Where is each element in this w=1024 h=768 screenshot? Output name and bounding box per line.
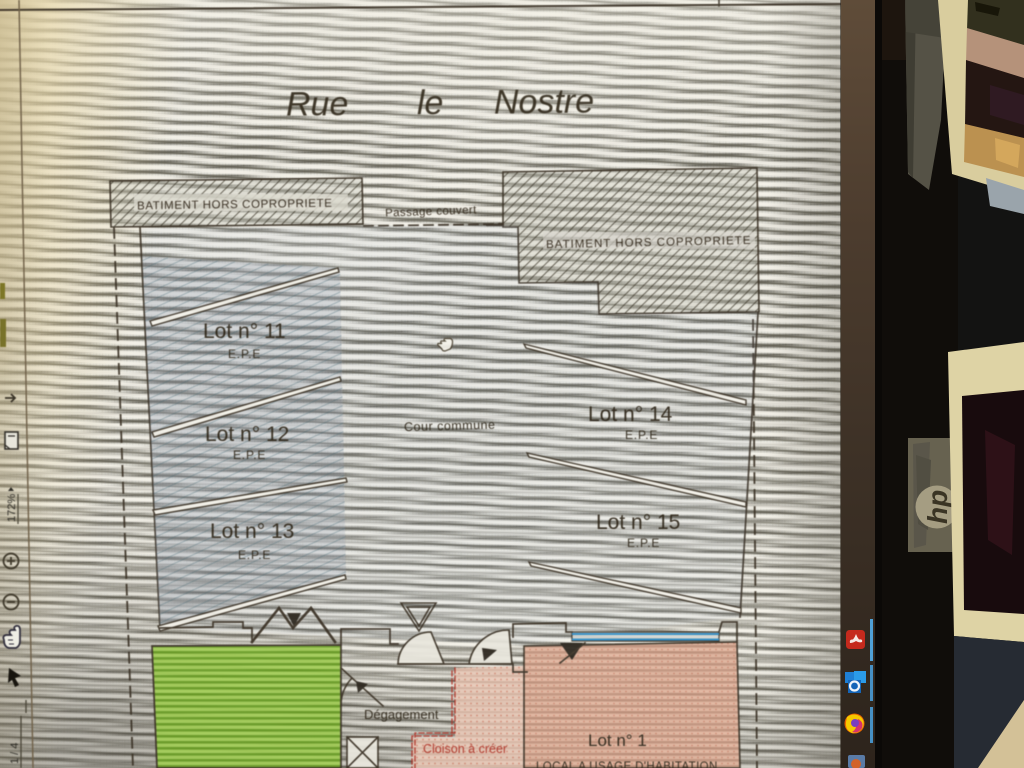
svg-text:E.P.E: E.P.E <box>625 428 658 442</box>
svg-text:Nostre: Nostre <box>494 82 595 121</box>
svg-text:E.P.E: E.P.E <box>238 548 271 562</box>
svg-text:E.P.E: E.P.E <box>627 536 660 550</box>
svg-text:Lot n° 15: Lot n° 15 <box>596 511 680 534</box>
svg-text:Lot n° 1: Lot n° 1 <box>588 731 647 750</box>
svg-text:1 / 4: 1 / 4 <box>9 743 21 764</box>
svg-text:Lot n° 13: Lot n° 13 <box>210 520 294 543</box>
svg-text:Rue: Rue <box>286 85 349 124</box>
svg-text:Cloison à créer: Cloison à créer <box>423 742 507 756</box>
svg-text:Lot n° 12: Lot n° 12 <box>205 423 289 446</box>
svg-text:Passage couvert: Passage couvert <box>385 204 477 219</box>
svg-text:E.P.E: E.P.E <box>233 448 266 462</box>
svg-text:LOCAL A USAGE D'HABITATION: LOCAL A USAGE D'HABITATION <box>536 761 718 768</box>
svg-text:hp: hp <box>922 490 953 524</box>
svg-text:E.P.E: E.P.E <box>228 347 261 361</box>
svg-text:Lot n° 14: Lot n° 14 <box>588 403 673 426</box>
svg-text:Dégagement: Dégagement <box>364 707 439 722</box>
svg-text:le: le <box>417 84 444 122</box>
svg-text:172%: 172% <box>6 494 18 522</box>
svg-text:Cour commune: Cour commune <box>404 418 496 434</box>
svg-text:Lot n° 11: Lot n° 11 <box>203 320 286 343</box>
